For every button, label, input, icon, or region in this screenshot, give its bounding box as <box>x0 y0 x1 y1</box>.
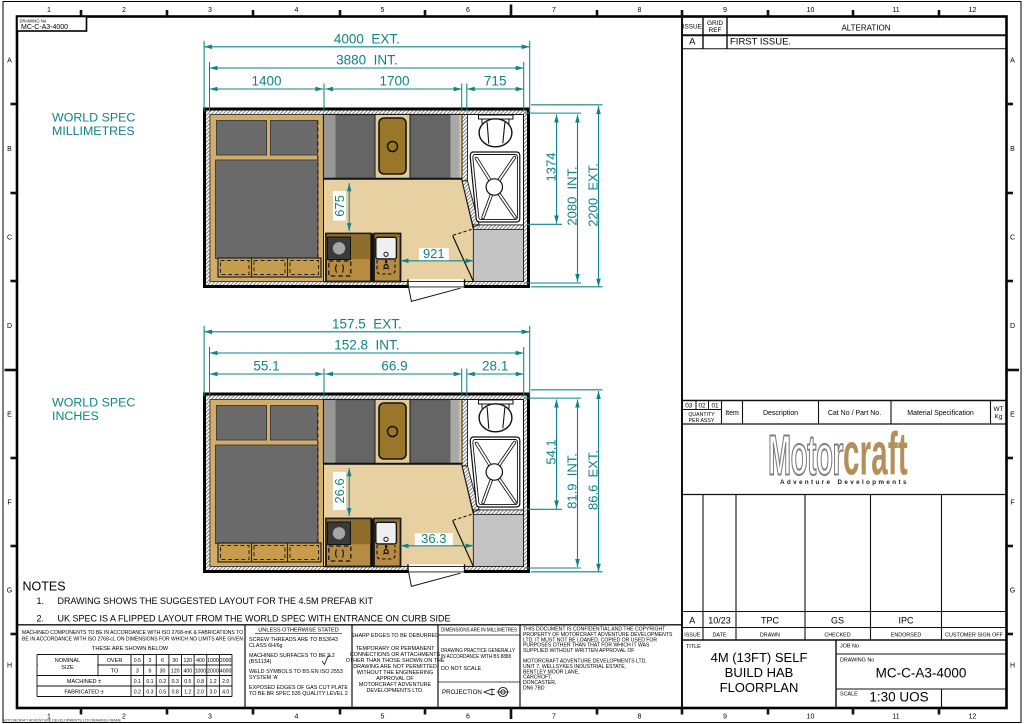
svg-text:0.5: 0.5 <box>184 679 191 685</box>
svg-text:2200 EXT.: 2200 EXT. <box>586 163 601 227</box>
svg-text:2080 INT.: 2080 INT. <box>565 166 580 225</box>
svg-text:TITLE: TITLE <box>686 644 701 650</box>
svg-text:DRAWN: DRAWN <box>760 633 780 639</box>
svg-text:NOMINAL: NOMINAL <box>55 658 81 664</box>
svg-text:81.9 INT.: 81.9 INT. <box>565 453 580 509</box>
svg-text:JOB No: JOB No <box>840 644 859 650</box>
svg-text:4000 EXT.: 4000 EXT. <box>334 31 400 46</box>
svg-text:SYSTEM 'A': SYSTEM 'A' <box>249 675 278 681</box>
svg-text:4.0: 4.0 <box>222 690 229 696</box>
svg-text:1374: 1374 <box>544 153 559 182</box>
svg-text:2: 2 <box>122 714 126 721</box>
svg-text:120: 120 <box>171 669 180 675</box>
svg-text:4: 4 <box>295 7 299 14</box>
svg-text:G: G <box>1010 588 1015 595</box>
svg-text:THESE ARE SHOWN BELOW: THESE ARE SHOWN BELOW <box>92 646 169 652</box>
svg-text:7: 7 <box>552 7 556 14</box>
svg-text:1700: 1700 <box>379 74 409 89</box>
svg-text:SHARP EDGES TO BE DEBURRED: SHARP EDGES TO BE DEBURRED <box>351 633 439 639</box>
svg-text:66.9: 66.9 <box>381 359 407 374</box>
svg-text:H: H <box>7 663 12 670</box>
svg-text:3: 3 <box>208 7 212 14</box>
svg-text:6: 6 <box>466 7 470 14</box>
svg-text:BE IN ACCORDANCE WITH ISO 2768: BE IN ACCORDANCE WITH ISO 2768-cL ON DIM… <box>22 637 243 643</box>
svg-text:DO NOT SCALE: DO NOT SCALE <box>441 666 481 672</box>
svg-text:9: 9 <box>723 7 727 14</box>
svg-text:54.1: 54.1 <box>544 439 559 464</box>
svg-text:01: 01 <box>711 402 719 409</box>
svg-text:12: 12 <box>969 7 977 14</box>
svg-text:TPC: TPC <box>761 616 780 626</box>
svg-text:26.6: 26.6 <box>332 478 347 503</box>
svg-text:0.1: 0.1 <box>134 679 141 685</box>
svg-text:Description: Description <box>763 410 798 417</box>
svg-text:86.6 EXT.: 86.6 EXT. <box>586 450 601 510</box>
svg-text:DIMENSIONS ARE IN MILLIMETRES: DIMENSIONS ARE IN MILLIMETRES <box>441 628 517 634</box>
svg-text:03: 03 <box>685 402 693 409</box>
svg-text:6: 6 <box>466 714 470 721</box>
svg-text:OVER: OVER <box>107 658 123 664</box>
svg-text:DATE: DATE <box>713 633 727 639</box>
svg-text:MILLIMETRES: MILLIMETRES <box>52 124 135 138</box>
svg-text:0.8: 0.8 <box>197 679 204 685</box>
svg-text:28.1: 28.1 <box>482 359 508 374</box>
svg-text:G: G <box>7 588 12 595</box>
svg-text:DN6 7BD: DN6 7BD <box>523 686 545 692</box>
svg-text:ALTERATION: ALTERATION <box>841 24 890 33</box>
svg-text:400: 400 <box>196 658 205 664</box>
svg-text:30: 30 <box>160 669 166 675</box>
svg-text:1: 1 <box>47 7 51 14</box>
svg-text:PROJECTION: PROJECTION <box>442 689 482 696</box>
svg-text:4: 4 <box>295 714 299 721</box>
svg-text:Cat No / Part No.: Cat No / Part No. <box>828 410 881 417</box>
svg-text:A: A <box>1010 58 1015 65</box>
svg-text:1:30 UOS: 1:30 UOS <box>869 690 928 705</box>
svg-text:2000: 2000 <box>207 669 219 675</box>
svg-text:A: A <box>689 37 696 48</box>
svg-text:A: A <box>689 616 695 626</box>
svg-text:UK SPEC IS A FLIPPED LAYOUT FR: UK SPEC IS A FLIPPED LAYOUT FROM THE WOR… <box>58 614 451 624</box>
svg-text:0.5: 0.5 <box>134 658 141 664</box>
svg-text:SUPPLIED WITHOUT WRITTEN APPRO: SUPPLIED WITHOUT WRITTEN APPROVAL OF <box>523 648 634 654</box>
svg-text:DRAWING No: DRAWING No <box>20 18 47 23</box>
svg-text:0.5: 0.5 <box>159 690 166 696</box>
svg-text:NOTES: NOTES <box>23 580 66 594</box>
svg-text:H: H <box>1010 663 1015 670</box>
svg-text:SCALE: SCALE <box>840 692 858 698</box>
svg-text:A: A <box>7 58 12 65</box>
svg-text:3880 INT.: 3880 INT. <box>336 53 398 68</box>
svg-text:DRAWING No: DRAWING No <box>840 658 874 664</box>
svg-text:715: 715 <box>484 74 507 89</box>
svg-text:F: F <box>1010 500 1014 507</box>
svg-text:400: 400 <box>183 669 192 675</box>
svg-text:PER ASSY: PER ASSY <box>689 418 715 424</box>
svg-text:Motor: Motor <box>768 425 843 487</box>
svg-text:D: D <box>7 323 12 330</box>
svg-text:DRAWING SHOWS THE SUGGESTED LA: DRAWING SHOWS THE SUGGESTED LAYOUT FOR T… <box>58 596 374 606</box>
svg-text:4000: 4000 <box>220 669 232 675</box>
svg-text:10/23: 10/23 <box>708 616 731 626</box>
svg-text:D: D <box>1010 323 1015 330</box>
svg-text:MC-C-A3-4000: MC-C-A3-4000 <box>21 24 68 31</box>
svg-text:MOTORCRAFT ADVENTURE DEVELOPME: MOTORCRAFT ADVENTURE DEVELOPMENTS LTD DR… <box>3 719 122 723</box>
svg-text:4M (13FT) SELF: 4M (13FT) SELF <box>711 650 808 665</box>
svg-text:3: 3 <box>148 658 151 664</box>
svg-text:8: 8 <box>638 714 642 721</box>
svg-text:TO BE BR SPEC 535 QUALITY LEVE: TO BE BR SPEC 535 QUALITY LEVEL 2 <box>249 691 348 697</box>
svg-text:SIZE: SIZE <box>61 665 74 671</box>
svg-text:7: 7 <box>552 714 556 721</box>
svg-text:152.8 INT.: 152.8 INT. <box>334 338 399 353</box>
svg-text:1000: 1000 <box>207 658 219 664</box>
svg-text:10: 10 <box>807 714 815 721</box>
svg-text:FIRST ISSUE.: FIRST ISSUE. <box>730 37 791 48</box>
svg-text:3: 3 <box>136 669 139 675</box>
svg-text:TO: TO <box>111 669 119 675</box>
svg-text:WT: WT <box>994 406 1004 413</box>
svg-text:Kg: Kg <box>995 414 1003 421</box>
svg-text:0.2: 0.2 <box>159 679 166 685</box>
svg-text:1.: 1. <box>37 596 45 606</box>
svg-text:B: B <box>7 146 12 153</box>
svg-text:1400: 1400 <box>251 74 281 89</box>
svg-text:E: E <box>7 412 12 419</box>
svg-text:CUSTOMER SIGN OFF: CUSTOMER SIGN OFF <box>945 633 1003 639</box>
svg-text:F: F <box>7 500 11 507</box>
svg-text:0.8: 0.8 <box>172 690 179 696</box>
svg-text:FABRICATED ±: FABRICATED ± <box>64 690 103 696</box>
svg-text:9: 9 <box>723 714 727 721</box>
svg-text:MACHINED ±: MACHINED ± <box>67 679 101 685</box>
svg-text:10: 10 <box>807 7 815 14</box>
svg-text:921: 921 <box>423 246 445 261</box>
svg-text:5: 5 <box>381 714 385 721</box>
svg-text:1000: 1000 <box>195 669 207 675</box>
svg-text:55.1: 55.1 <box>253 359 279 374</box>
svg-text:DEVELOPMENTS LTD.: DEVELOPMENTS LTD. <box>366 688 423 694</box>
svg-text:157.5 EXT.: 157.5 EXT. <box>332 316 402 331</box>
svg-text:E: E <box>1010 412 1015 419</box>
svg-text:C: C <box>7 235 12 242</box>
svg-text:1.2: 1.2 <box>184 690 191 696</box>
svg-text:120: 120 <box>183 658 192 664</box>
svg-text:GRID: GRID <box>707 20 723 27</box>
svg-text:REF: REF <box>709 27 722 34</box>
svg-text:02: 02 <box>698 402 706 409</box>
svg-text:0.1: 0.1 <box>146 679 153 685</box>
svg-text:30: 30 <box>172 658 178 664</box>
svg-text:ENDORSED: ENDORSED <box>891 633 922 639</box>
svg-text:2: 2 <box>122 7 126 14</box>
svg-text:5: 5 <box>381 7 385 14</box>
svg-text:Material Specification: Material Specification <box>907 410 974 417</box>
svg-text:6: 6 <box>148 669 151 675</box>
svg-text:CHECKED: CHECKED <box>824 633 850 639</box>
svg-text:3.0: 3.0 <box>209 690 216 696</box>
svg-text:2.0: 2.0 <box>197 690 204 696</box>
svg-text:BUILD HAB: BUILD HAB <box>725 665 794 680</box>
svg-text:3: 3 <box>208 714 212 721</box>
svg-text:1.2: 1.2 <box>209 679 216 685</box>
svg-text:FLOORPLAN: FLOORPLAN <box>720 680 799 695</box>
svg-text:GS: GS <box>831 616 844 626</box>
svg-text:WORLD SPEC: WORLD SPEC <box>52 111 135 125</box>
svg-text:MACHINED COMPONENTS TO BE IN A: MACHINED COMPONENTS TO BE IN ACCORDANCE … <box>22 630 243 636</box>
svg-text:MC-C-A3-4000: MC-C-A3-4000 <box>876 666 967 681</box>
svg-text:12: 12 <box>969 714 977 721</box>
svg-text:A d v e n t u r e D e v e l: A d v e n t u r e D e v e l o p m e n t … <box>780 479 907 486</box>
svg-text:2.0: 2.0 <box>222 679 229 685</box>
svg-text:(BS1134): (BS1134) <box>249 659 272 665</box>
svg-text:ISSUE: ISSUE <box>683 24 702 31</box>
svg-text:2.: 2. <box>37 614 45 624</box>
svg-text:11: 11 <box>892 714 899 721</box>
svg-text:6: 6 <box>161 658 164 664</box>
svg-text:8: 8 <box>638 7 642 14</box>
svg-text:0.3: 0.3 <box>146 690 153 696</box>
svg-text:675: 675 <box>332 195 347 217</box>
svg-text:11: 11 <box>892 7 899 14</box>
svg-text:INCHES: INCHES <box>52 409 99 423</box>
svg-text:C: C <box>1010 235 1015 242</box>
svg-text:WORLD SPEC: WORLD SPEC <box>52 396 135 410</box>
svg-text:IPC: IPC <box>898 616 914 626</box>
svg-text:0.2: 0.2 <box>134 690 141 696</box>
svg-text:ISSUE: ISSUE <box>684 633 701 639</box>
svg-text:0.3: 0.3 <box>172 679 179 685</box>
svg-text:36.3: 36.3 <box>421 531 446 546</box>
svg-text:IN ACCORDANCE WITH BS 8888: IN ACCORDANCE WITH BS 8888 <box>441 654 511 660</box>
svg-text:B: B <box>1010 146 1015 153</box>
svg-text:UNLESS OTHERWISE STATED: UNLESS OTHERWISE STATED <box>258 628 339 634</box>
svg-text:CLASS 6H/6g: CLASS 6H/6g <box>249 643 283 649</box>
svg-text:2000: 2000 <box>220 658 232 664</box>
svg-text:Item: Item <box>725 410 739 417</box>
